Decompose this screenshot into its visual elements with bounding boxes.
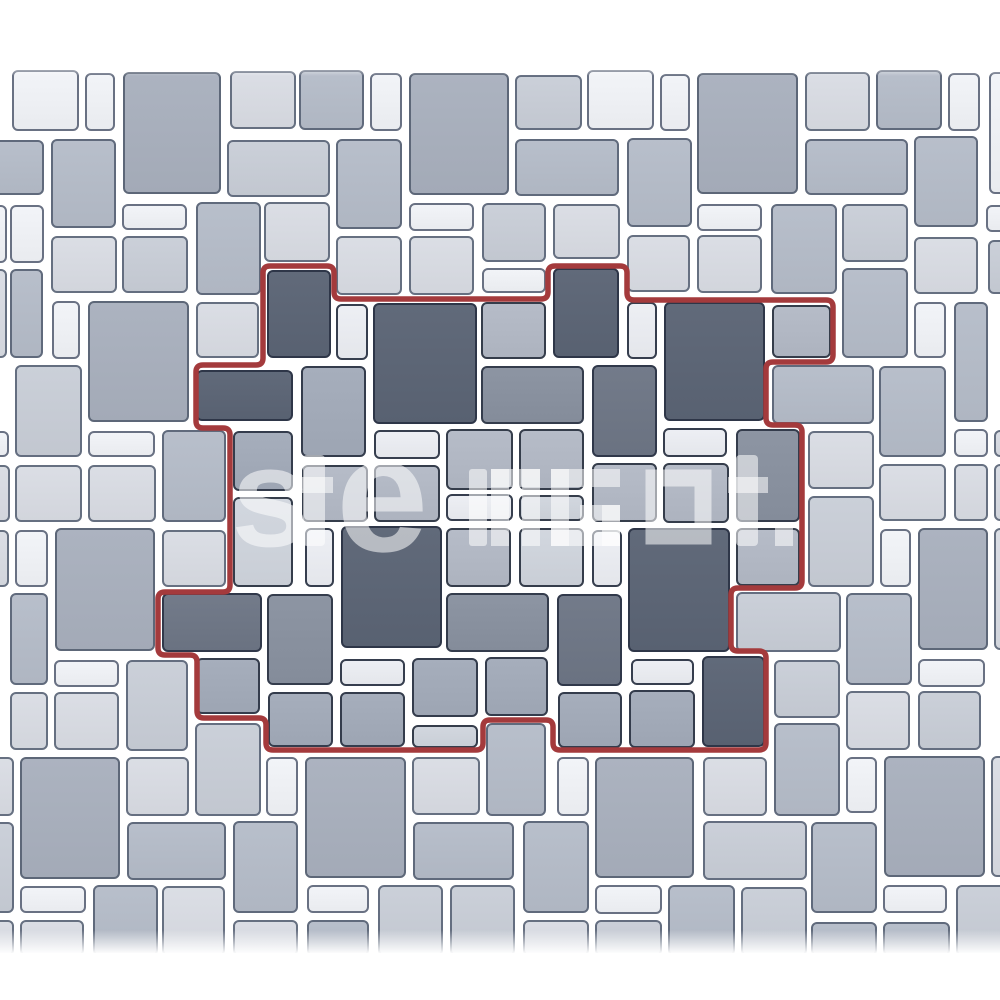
svg-text:e: e: [336, 402, 428, 587]
svg-text:s: s: [231, 418, 310, 577]
